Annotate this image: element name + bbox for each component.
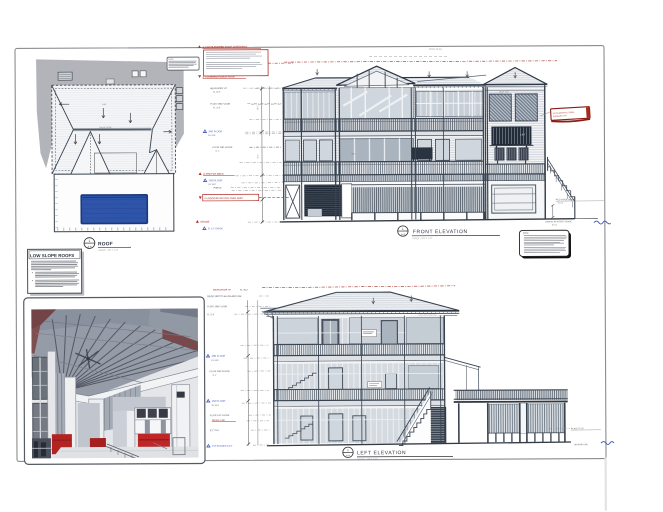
svg-text:EL 15.4': EL 15.4'	[212, 405, 220, 407]
svg-text:10'-1": 10'-1"	[257, 105, 259, 110]
svg-text:1: 1	[89, 239, 91, 243]
svg-text:EL 8.0: EL 8.0	[558, 203, 563, 205]
svg-text:EL 38.5': EL 38.5'	[213, 92, 221, 94]
svg-text:2ND FLOOR: 2ND FLOOR	[209, 179, 223, 182]
svg-text:LEFT ELEVATION: LEFT ELEVATION	[357, 450, 406, 456]
svg-text:NOTE: NOTE	[169, 59, 175, 61]
svg-text:2ND FLOOR: 2ND FLOOR	[212, 400, 226, 403]
svg-text:FRONT ELEVATION: FRONT ELEVATION	[413, 229, 468, 235]
svg-text:A-6: A-6	[87, 245, 92, 249]
svg-text:3RD FLOOR: 3RD FLOOR	[211, 355, 225, 358]
svg-text:EL 6.2: EL 6.2	[552, 224, 557, 226]
svg-text:SILL: SILL	[352, 153, 356, 155]
svg-text:SCALE : 1/4" = 1'-0": SCALE : 1/4" = 1'-0"	[358, 458, 378, 461]
svg-text:A-5: A-5	[401, 233, 406, 236]
svg-text:ROOF PEAK: ROOF PEAK	[429, 48, 442, 51]
svg-text:PORCH: PORCH	[214, 188, 222, 190]
svg-text:MEAN ROOF HT: MEAN ROOF HT	[213, 289, 231, 292]
svg-text:SCALE : 1/4" = 1'-0": SCALE : 1/4" = 1'-0"	[412, 237, 432, 240]
svg-text:9'-1": 9'-1"	[213, 375, 217, 377]
svg-text:RIDGE VENT: RIDGE VENT	[99, 127, 112, 129]
svg-text:NOTE:: NOTE:	[523, 233, 530, 235]
svg-text:GRADE: GRADE	[200, 221, 209, 224]
svg-text:PLATE 2ND FLOOR: PLATE 2ND FLOOR	[210, 370, 230, 373]
svg-text:PLATE 3RD FLOOR: PLATE 3RD FLOOR	[210, 103, 230, 106]
svg-text:A-5: A-5	[346, 455, 351, 458]
svg-text:RIDGE VENT TO ALLOW AIR FLOW: RIDGE VENT TO ALLOW AIR FLOW	[207, 295, 241, 298]
svg-text:ROOF CAP: ROOF CAP	[499, 91, 509, 94]
svg-text:3RD FLOOR: 3RD FLOOR	[208, 130, 222, 133]
svg-text:4' UNDERHOUSE ENCLOSED AREA: 4' UNDERHOUSE ENCLOSED AREA	[204, 197, 243, 200]
svg-text:SCALE : 1/4" = 1'-0": SCALE : 1/4" = 1'-0"	[98, 249, 118, 252]
svg-text:8'-1" CLG: 8'-1" CLG	[210, 430, 219, 432]
svg-text:PLATE 2ND FLOOR: PLATE 2ND FLOOR	[212, 146, 232, 149]
svg-text:PLATE 3RD FLOOR: PLATE 3RD FLOOR	[207, 305, 227, 308]
svg-text:LOW SLOPE ROOFS: LOW SLOPE ROOFS	[30, 253, 74, 258]
svg-text:LIFT: LIFT	[520, 133, 525, 136]
svg-text:EL 24.5': EL 24.5'	[208, 135, 216, 137]
svg-text:EL 36.2': EL 36.2'	[240, 290, 248, 292]
svg-text:PILE GRADE BEAM: PILE GRADE BEAM	[556, 198, 575, 201]
svg-text:4' 3RD FLR DECK: 4' 3RD FLR DECK	[203, 173, 224, 176]
svg-text:GRADE LINE: GRADE LINE	[212, 419, 226, 422]
svg-text:EL 32.6': EL 32.6'	[213, 107, 221, 109]
svg-text:EL 15.4': EL 15.4'	[209, 184, 217, 186]
svg-text:EL 24.5': EL 24.5'	[212, 360, 220, 362]
svg-text:EL 32.6': EL 32.6'	[207, 314, 215, 316]
svg-text:PLATE 1ST FLOOR: PLATE 1ST FLOOR	[210, 414, 230, 417]
svg-text:GROUND LINE: GROUND LINE	[574, 444, 589, 446]
svg-text:MEAN ROOF HT: MEAN ROOF HT	[210, 87, 227, 90]
svg-text:LOWEST ADJACENT GRADE: LOWEST ADJACENT GRADE	[545, 220, 573, 223]
svg-text:1ST FLOOR EL 8.5': 1ST FLOOR EL 8.5'	[212, 446, 233, 448]
svg-text:EL 6.2' GRADE: EL 6.2' GRADE	[208, 227, 224, 230]
svg-text:9'-1": 9'-1"	[215, 151, 219, 153]
svg-text:ROOF: ROOF	[98, 241, 113, 247]
svg-text:9'-1": 9'-1"	[258, 154, 260, 158]
